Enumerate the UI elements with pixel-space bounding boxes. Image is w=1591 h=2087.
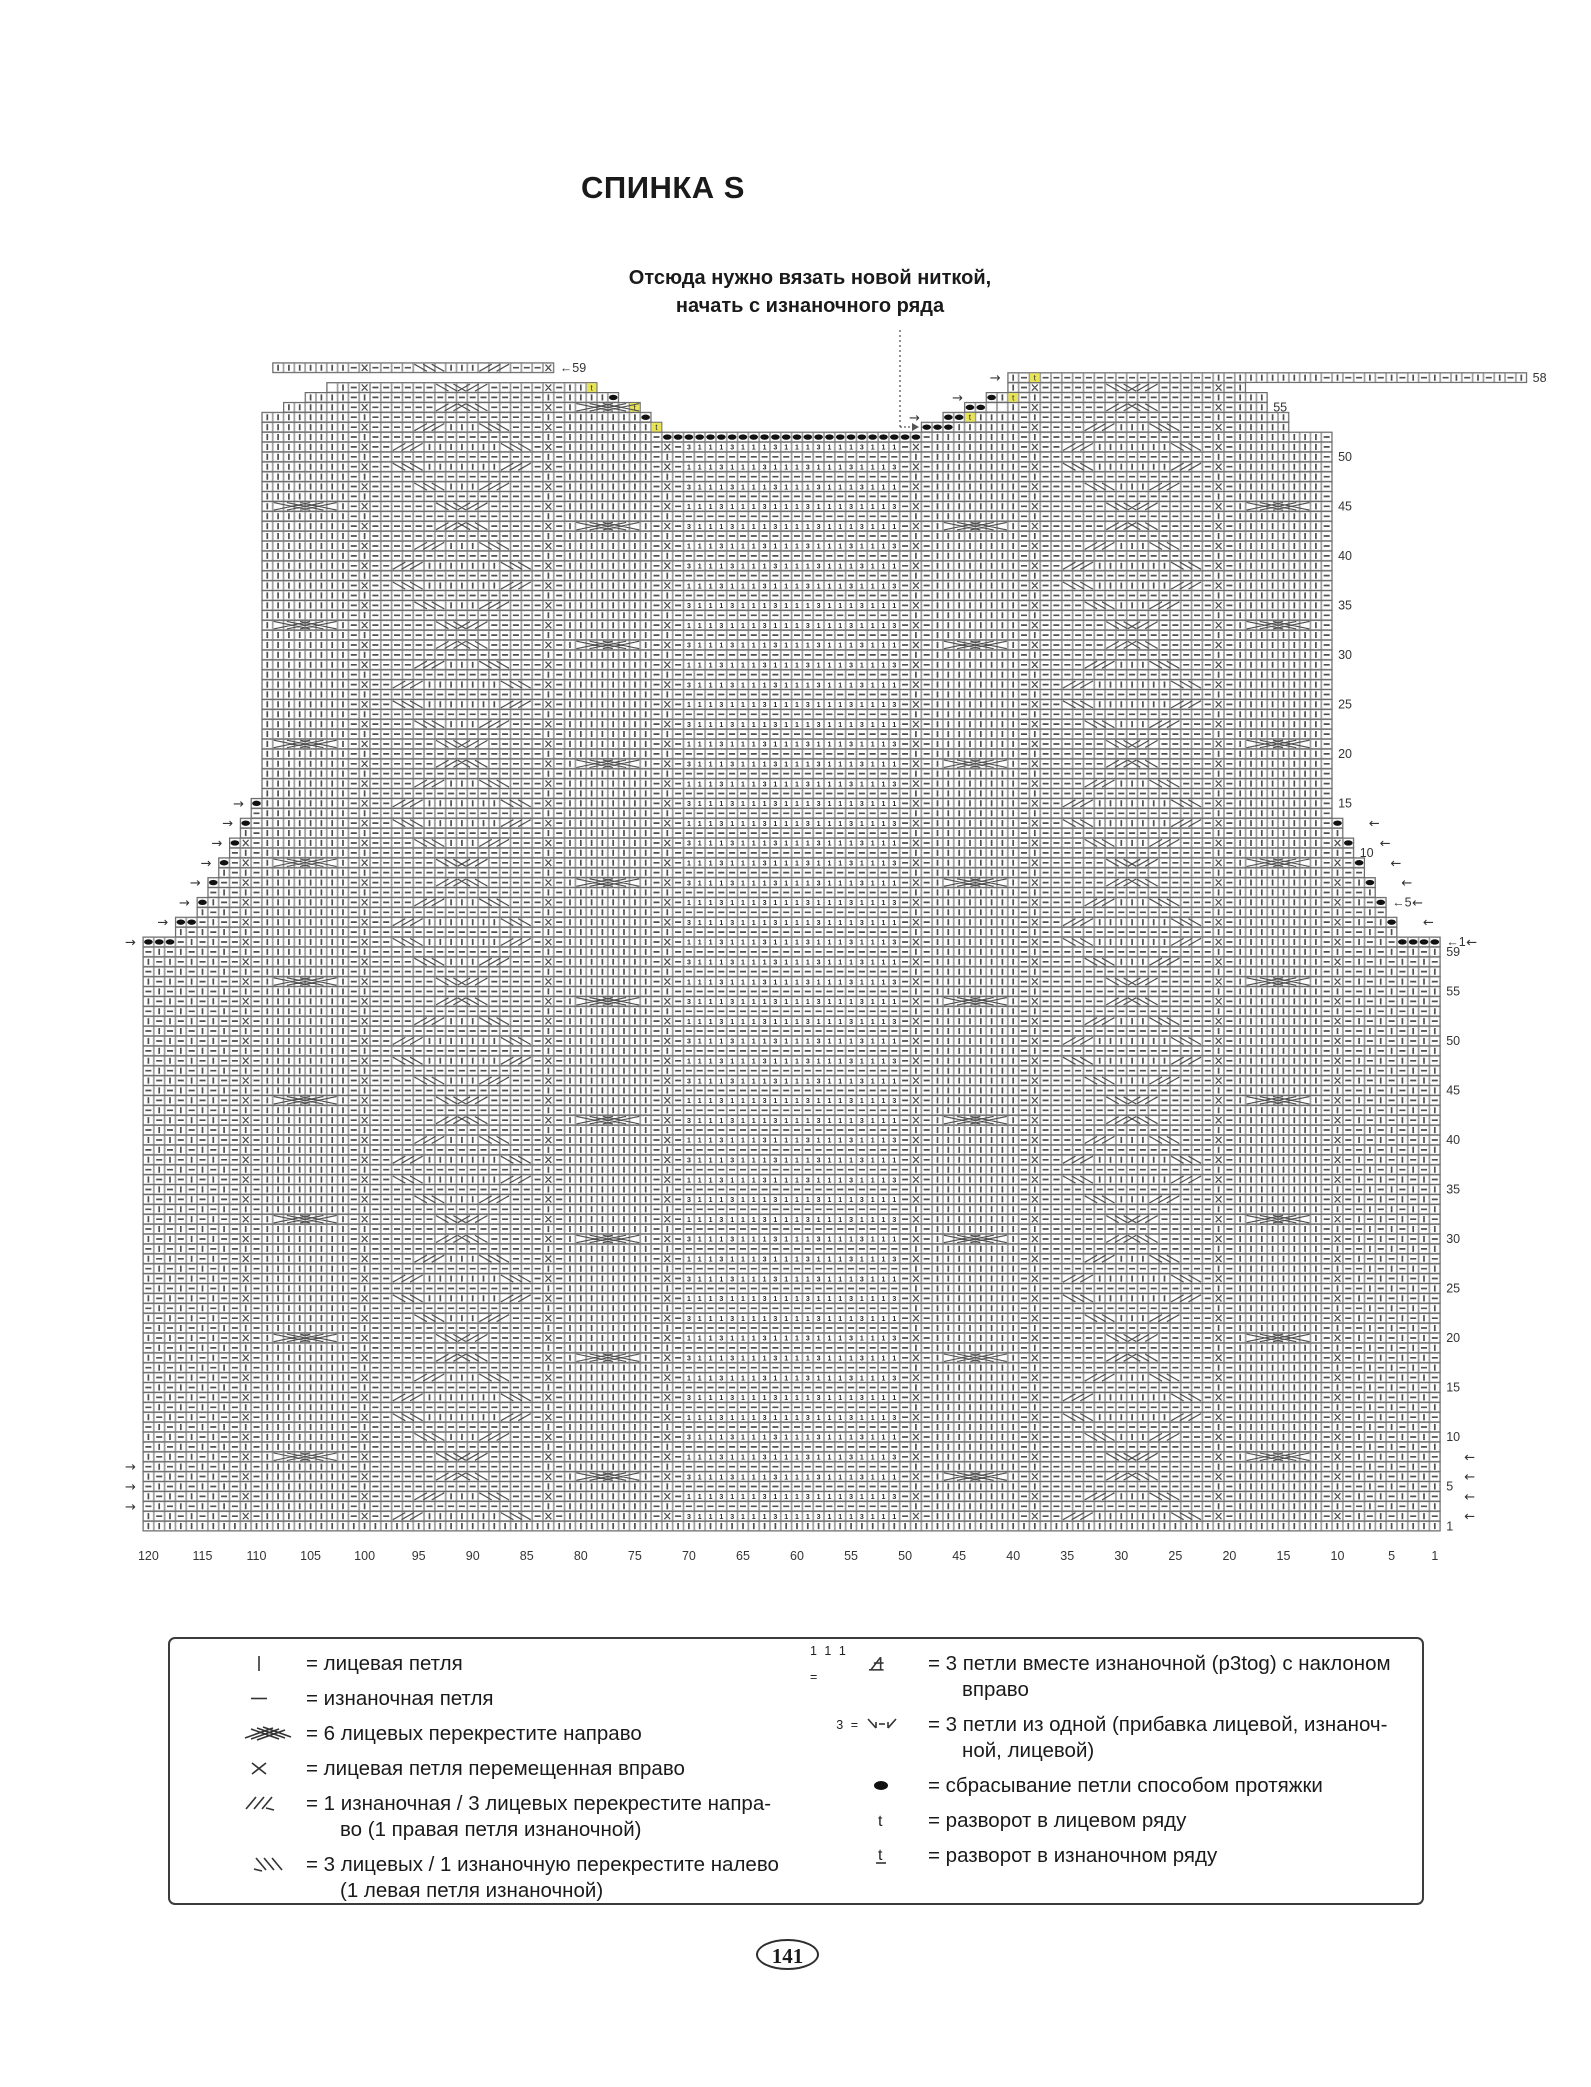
- svg-text:1: 1: [698, 722, 702, 729]
- svg-text:1: 1: [730, 465, 734, 472]
- svg-text:1: 1: [795, 742, 799, 749]
- svg-text:1: 1: [784, 1435, 788, 1442]
- svg-text:3: 3: [719, 702, 723, 709]
- svg-text:1: 1: [860, 979, 864, 986]
- svg-text:1: 1: [892, 1356, 896, 1363]
- svg-text:3: 3: [687, 880, 691, 887]
- svg-text:1: 1: [817, 979, 821, 986]
- svg-text:1: 1: [763, 1514, 767, 1521]
- svg-text:1: 1: [827, 1455, 831, 1462]
- svg-text:1: 1: [860, 1375, 864, 1382]
- svg-text:3: 3: [763, 1375, 767, 1382]
- svg-text:3: 3: [773, 1514, 777, 1521]
- svg-text:1: 1: [752, 1059, 756, 1066]
- svg-text:1: 1: [741, 1158, 745, 1165]
- svg-text:3: 3: [773, 722, 777, 729]
- svg-text:3: 3: [817, 643, 821, 650]
- svg-text:1: 1: [687, 1138, 691, 1145]
- svg-text:1: 1: [784, 722, 788, 729]
- svg-text:1: 1: [817, 900, 821, 907]
- svg-text:1: 1: [849, 484, 853, 491]
- svg-text:1: 1: [709, 979, 713, 986]
- svg-text:1: 1: [882, 999, 886, 1006]
- legend-line: = 3 петли из одной (прибавка лицевой, из…: [928, 1712, 1410, 1738]
- svg-text:1: 1: [838, 821, 842, 828]
- svg-text:1: 1: [752, 1138, 756, 1145]
- legend-box: = лицевая петля= изнаночная петля= 6 лиц…: [168, 1637, 1424, 1905]
- svg-text:3: 3: [730, 1197, 734, 1204]
- svg-text:1: 1: [741, 465, 745, 472]
- svg-text:1: 1: [741, 663, 745, 670]
- svg-text:1: 1: [860, 781, 864, 788]
- svg-text:1: 1: [784, 742, 788, 749]
- svg-text:1: 1: [698, 663, 702, 670]
- svg-text:1: 1: [860, 940, 864, 947]
- svg-text:3: 3: [687, 1474, 691, 1481]
- svg-text:1: 1: [827, 1356, 831, 1363]
- stitch-number-label: 80: [574, 1549, 588, 1563]
- row-direction-arrow-right: →: [211, 836, 222, 851]
- svg-text:3: 3: [849, 663, 853, 670]
- svg-text:1: 1: [784, 1257, 788, 1264]
- svg-text:1: 1: [806, 1276, 810, 1283]
- row-number-label: ←1: [1446, 935, 1466, 949]
- svg-text:t: t: [878, 1847, 883, 1864]
- svg-text:1: 1: [849, 1276, 853, 1283]
- svg-text:1: 1: [709, 920, 713, 927]
- svg-text:1: 1: [784, 643, 788, 650]
- svg-text:1: 1: [838, 1395, 842, 1402]
- svg-text:1: 1: [698, 1118, 702, 1125]
- svg-text:1: 1: [763, 1474, 767, 1481]
- svg-text:1: 1: [882, 821, 886, 828]
- svg-text:3: 3: [817, 1435, 821, 1442]
- legend-line: = лицевая петля: [306, 1651, 778, 1677]
- svg-text:1: 1: [741, 682, 745, 689]
- svg-text:1: 1: [849, 880, 853, 887]
- svg-text:1: 1: [752, 880, 756, 887]
- svg-text:3: 3: [892, 1415, 896, 1422]
- svg-text:1: 1: [719, 603, 723, 610]
- svg-text:1: 1: [827, 861, 831, 868]
- svg-text:1: 1: [871, 861, 875, 868]
- svg-text:3: 3: [892, 979, 896, 986]
- svg-text:1: 1: [709, 1257, 713, 1264]
- svg-text:1: 1: [882, 564, 886, 571]
- svg-text:1: 1: [752, 524, 756, 531]
- svg-text:1: 1: [882, 1375, 886, 1382]
- legend-line: = сбрасывание петли способом протяжки: [928, 1773, 1410, 1799]
- svg-text:1: 1: [709, 663, 713, 670]
- svg-text:3: 3: [763, 465, 767, 472]
- svg-text:1: 1: [806, 1395, 810, 1402]
- svg-text:1: 1: [871, 1435, 875, 1442]
- svg-text:1: 1: [827, 1019, 831, 1026]
- svg-text:3: 3: [817, 841, 821, 848]
- svg-text:1: 1: [871, 583, 875, 590]
- svg-text:1: 1: [763, 1158, 767, 1165]
- svg-text:1: 1: [752, 1435, 756, 1442]
- svg-text:3: 3: [687, 1237, 691, 1244]
- svg-text:1: 1: [741, 1039, 745, 1046]
- svg-text:1: 1: [817, 781, 821, 788]
- svg-text:1: 1: [719, 1237, 723, 1244]
- svg-text:1: 1: [882, 880, 886, 887]
- svg-text:1: 1: [795, 643, 799, 650]
- svg-text:1: 1: [773, 1455, 777, 1462]
- svg-text:1: 1: [817, 940, 821, 947]
- svg-text:1: 1: [784, 702, 788, 709]
- svg-text:1: 1: [741, 1435, 745, 1442]
- svg-text:1: 1: [730, 1375, 734, 1382]
- svg-text:1: 1: [860, 465, 864, 472]
- svg-text:3: 3: [763, 861, 767, 868]
- svg-text:1: 1: [773, 1494, 777, 1501]
- row-number-label: 25: [1446, 1282, 1460, 1296]
- cross-3-1-left-icon: [188, 1852, 306, 1878]
- svg-text:3: 3: [849, 465, 853, 472]
- svg-text:3: 3: [817, 1514, 821, 1521]
- svg-text:1: 1: [709, 445, 713, 452]
- svg-text:3: 3: [773, 920, 777, 927]
- svg-text:1: 1: [871, 1316, 875, 1323]
- svg-text:1: 1: [741, 1296, 745, 1303]
- svg-text:1: 1: [719, 564, 723, 571]
- svg-text:1: 1: [698, 841, 702, 848]
- svg-text:1: 1: [773, 1336, 777, 1343]
- svg-text:1: 1: [763, 1276, 767, 1283]
- svg-text:3: 3: [817, 1356, 821, 1363]
- svg-text:3: 3: [806, 1257, 810, 1264]
- svg-text:3: 3: [860, 801, 864, 808]
- svg-text:1: 1: [709, 861, 713, 868]
- svg-text:1: 1: [806, 484, 810, 491]
- svg-text:3: 3: [687, 524, 691, 531]
- svg-text:1: 1: [838, 1296, 842, 1303]
- svg-text:1: 1: [817, 1138, 821, 1145]
- chart-grid: [143, 363, 1527, 1531]
- row-direction-arrow-right: →: [125, 1460, 136, 1475]
- legend-entry-text: = 1 изнаночная / 3 лицевых перекрестите …: [306, 1791, 778, 1843]
- svg-text:1: 1: [892, 603, 896, 610]
- svg-text:1: 1: [871, 1138, 875, 1145]
- svg-text:3: 3: [860, 880, 864, 887]
- svg-text:3: 3: [892, 1494, 896, 1501]
- svg-text:1: 1: [827, 1316, 831, 1323]
- svg-text:3: 3: [773, 1474, 777, 1481]
- svg-text:1: 1: [838, 623, 842, 630]
- svg-text:3: 3: [849, 544, 853, 551]
- svg-text:3: 3: [763, 821, 767, 828]
- stitch-number-label: 30: [1114, 1549, 1128, 1563]
- svg-text:1: 1: [882, 1138, 886, 1145]
- svg-text:3: 3: [719, 504, 723, 511]
- svg-text:1: 1: [709, 940, 713, 947]
- svg-text:1: 1: [882, 960, 886, 967]
- stitch-number-label: 95: [412, 1549, 426, 1563]
- svg-text:1: 1: [730, 544, 734, 551]
- svg-text:1: 1: [719, 999, 723, 1006]
- svg-text:1: 1: [795, 1019, 799, 1026]
- svg-text:1: 1: [827, 1336, 831, 1343]
- svg-text:1: 1: [784, 1078, 788, 1085]
- svg-text:3: 3: [730, 1316, 734, 1323]
- svg-text:3: 3: [817, 1474, 821, 1481]
- svg-text:1: 1: [806, 564, 810, 571]
- svg-text:3: 3: [806, 1138, 810, 1145]
- svg-text:3: 3: [817, 603, 821, 610]
- svg-text:1: 1: [752, 861, 756, 868]
- svg-text:3: 3: [860, 1039, 864, 1046]
- svg-text:1: 1: [784, 940, 788, 947]
- svg-text:1: 1: [871, 841, 875, 848]
- svg-text:3: 3: [719, 1336, 723, 1343]
- svg-text:3: 3: [687, 841, 691, 848]
- legend-entry: t= разворот в лицевом ряду: [810, 1808, 1410, 1834]
- svg-text:3: 3: [849, 504, 853, 511]
- svg-text:1: 1: [698, 564, 702, 571]
- svg-text:1: 1: [838, 1197, 842, 1204]
- knitting-chart: 3111311131113111311111131113111311131113…: [0, 0, 1591, 1620]
- svg-text:3: 3: [817, 1078, 821, 1085]
- row-direction-arrow-left: ←: [1401, 876, 1412, 891]
- svg-text:3: 3: [719, 1019, 723, 1026]
- page: СПИНКА S Отсюда нужно вязать новой нитко…: [0, 0, 1591, 2087]
- svg-text:1: 1: [741, 702, 745, 709]
- svg-text:3: 3: [719, 465, 723, 472]
- svg-text:1: 1: [892, 960, 896, 967]
- svg-text:1: 1: [730, 1098, 734, 1105]
- svg-text:3: 3: [860, 1514, 864, 1521]
- stitch-number-label: 75: [628, 1549, 642, 1563]
- svg-text:1: 1: [838, 781, 842, 788]
- svg-text:1: 1: [795, 484, 799, 491]
- svg-text:3: 3: [806, 504, 810, 511]
- svg-text:3: 3: [817, 722, 821, 729]
- svg-text:1: 1: [687, 1336, 691, 1343]
- svg-text:3: 3: [892, 504, 896, 511]
- svg-text:1: 1: [838, 1217, 842, 1224]
- svg-text:1: 1: [752, 583, 756, 590]
- svg-text:1: 1: [838, 722, 842, 729]
- row-number-label: 20: [1338, 747, 1352, 761]
- svg-text:3: 3: [817, 920, 821, 927]
- svg-text:3: 3: [730, 801, 734, 808]
- svg-text:1: 1: [871, 702, 875, 709]
- svg-text:1: 1: [892, 564, 896, 571]
- legend-line: = 3 петли вместе изнаночной (p3tog) с на…: [928, 1651, 1410, 1677]
- svg-text:1: 1: [860, 742, 864, 749]
- svg-text:1: 1: [892, 524, 896, 531]
- svg-text:1: 1: [687, 544, 691, 551]
- svg-text:1: 1: [882, 484, 886, 491]
- svg-text:1: 1: [806, 1514, 810, 1521]
- svg-text:1: 1: [784, 801, 788, 808]
- svg-text:1: 1: [838, 1118, 842, 1125]
- svg-text:1: 1: [752, 702, 756, 709]
- svg-text:1: 1: [698, 504, 702, 511]
- svg-text:1: 1: [687, 821, 691, 828]
- svg-text:1: 1: [806, 722, 810, 729]
- svg-text:1: 1: [709, 465, 713, 472]
- svg-text:1: 1: [784, 960, 788, 967]
- svg-text:1: 1: [882, 1177, 886, 1184]
- stitch-number-label: 70: [682, 1549, 696, 1563]
- svg-text:1: 1: [763, 1237, 767, 1244]
- svg-text:1: 1: [882, 1494, 886, 1501]
- svg-text:1: 1: [882, 1217, 886, 1224]
- svg-text:1: 1: [730, 781, 734, 788]
- purl-stitch-icon: [188, 1686, 306, 1712]
- svg-text:1: 1: [741, 979, 745, 986]
- svg-text:1: 1: [698, 880, 702, 887]
- svg-text:1: 1: [698, 603, 702, 610]
- legend-entry: 1 1 1 == 3 петли вместе изнаночной (p3to…: [810, 1651, 1410, 1703]
- svg-text:1: 1: [752, 1237, 756, 1244]
- svg-text:3: 3: [773, 1356, 777, 1363]
- legend-entry: = изнаночная петля: [188, 1686, 778, 1712]
- svg-text:3: 3: [730, 1039, 734, 1046]
- svg-text:3: 3: [849, 1375, 853, 1382]
- svg-text:1: 1: [784, 1039, 788, 1046]
- svg-text:1: 1: [698, 1197, 702, 1204]
- svg-text:1: 1: [882, 781, 886, 788]
- svg-text:1: 1: [784, 484, 788, 491]
- svg-text:1: 1: [795, 544, 799, 551]
- legend-entry-text: = 3 петли вместе изнаночной (p3tog) с на…: [928, 1651, 1410, 1703]
- svg-text:1: 1: [698, 920, 702, 927]
- svg-text:1: 1: [882, 663, 886, 670]
- svg-text:1: 1: [763, 1316, 767, 1323]
- svg-text:3: 3: [849, 861, 853, 868]
- svg-text:1: 1: [860, 623, 864, 630]
- svg-text:1: 1: [806, 1435, 810, 1442]
- svg-text:3: 3: [806, 742, 810, 749]
- svg-text:3: 3: [817, 960, 821, 967]
- legend-entry: = 3 лицевых / 1 изнаночную перекрестите …: [188, 1852, 778, 1904]
- svg-text:1: 1: [752, 1257, 756, 1264]
- svg-text:1: 1: [849, 762, 853, 769]
- svg-text:1: 1: [698, 465, 702, 472]
- svg-text:1: 1: [698, 544, 702, 551]
- svg-text:3: 3: [763, 1019, 767, 1026]
- svg-text:1: 1: [752, 643, 756, 650]
- svg-text:1: 1: [741, 781, 745, 788]
- svg-text:1: 1: [882, 940, 886, 947]
- svg-text:1: 1: [827, 841, 831, 848]
- stitch-number-label: 10: [1331, 1549, 1345, 1563]
- row-direction-arrow-left: ←: [1380, 836, 1391, 851]
- svg-text:1: 1: [698, 1237, 702, 1244]
- svg-text:1: 1: [698, 1276, 702, 1283]
- svg-text:1: 1: [892, 1078, 896, 1085]
- svg-text:3: 3: [730, 1474, 734, 1481]
- svg-text:1: 1: [784, 1158, 788, 1165]
- legend-line: ной, лицевой): [928, 1738, 1410, 1764]
- svg-text:1: 1: [838, 1098, 842, 1105]
- svg-text:1: 1: [730, 742, 734, 749]
- legend-line: = лицевая петля перемещенная вправо: [306, 1756, 778, 1782]
- svg-text:1: 1: [795, 1316, 799, 1323]
- svg-text:1: 1: [687, 583, 691, 590]
- svg-text:1: 1: [741, 821, 745, 828]
- svg-text:1: 1: [827, 999, 831, 1006]
- svg-text:1: 1: [741, 445, 745, 452]
- svg-text:3: 3: [730, 920, 734, 927]
- svg-text:1: 1: [741, 801, 745, 808]
- svg-text:1: 1: [709, 623, 713, 630]
- legend-entry-text: = разворот в лицевом ряду: [928, 1808, 1410, 1834]
- legend-entry: = лицевая петля перемещенная вправо: [188, 1756, 778, 1782]
- legend-entry: = сбрасывание петли способом протяжки: [810, 1773, 1410, 1799]
- svg-text:3: 3: [719, 940, 723, 947]
- p3tog-right-icon: 1 1 1 =: [810, 1651, 928, 1677]
- svg-text:1: 1: [752, 801, 756, 808]
- legend-entry-text: = лицевая петля: [306, 1651, 778, 1677]
- svg-text:1: 1: [838, 1138, 842, 1145]
- svg-text:1: 1: [795, 1217, 799, 1224]
- svg-text:1: 1: [849, 1395, 853, 1402]
- svg-text:3: 3: [849, 1336, 853, 1343]
- svg-text:1: 1: [752, 623, 756, 630]
- svg-text:3: 3: [892, 1019, 896, 1026]
- svg-text:3: 3: [730, 643, 734, 650]
- svg-text:1: 1: [882, 504, 886, 511]
- svg-text:3: 3: [687, 564, 691, 571]
- svg-text:1: 1: [698, 1257, 702, 1264]
- svg-text:1: 1: [806, 682, 810, 689]
- svg-text:1: 1: [698, 979, 702, 986]
- svg-text:1: 1: [719, 445, 723, 452]
- stitch-number-label: 110: [247, 1549, 267, 1563]
- svg-text:1: 1: [784, 1237, 788, 1244]
- svg-text:1: 1: [882, 465, 886, 472]
- svg-text:3: 3: [892, 1138, 896, 1145]
- svg-text:1: 1: [730, 979, 734, 986]
- svg-text:1: 1: [871, 603, 875, 610]
- svg-text:1: 1: [709, 1474, 713, 1481]
- svg-text:1: 1: [784, 841, 788, 848]
- svg-text:1: 1: [763, 564, 767, 571]
- svg-text:1: 1: [773, 1415, 777, 1422]
- stitch-number-label: 60: [790, 1549, 804, 1563]
- legend-line: (1 левая петля изнаночной): [306, 1878, 779, 1904]
- svg-text:1: 1: [698, 1078, 702, 1085]
- svg-text:1: 1: [871, 821, 875, 828]
- svg-text:1: 1: [752, 1375, 756, 1382]
- svg-text:3: 3: [687, 445, 691, 452]
- svg-text:1: 1: [709, 1395, 713, 1402]
- svg-text:3: 3: [817, 445, 821, 452]
- svg-text:3: 3: [687, 1276, 691, 1283]
- svg-text:1: 1: [817, 623, 821, 630]
- svg-text:3: 3: [860, 1078, 864, 1085]
- svg-text:1: 1: [741, 1237, 745, 1244]
- svg-text:1: 1: [871, 762, 875, 769]
- svg-text:1: 1: [882, 1237, 886, 1244]
- svg-text:1: 1: [730, 623, 734, 630]
- svg-text:1: 1: [838, 465, 842, 472]
- svg-text:3: 3: [687, 643, 691, 650]
- svg-text:1: 1: [719, 1514, 723, 1521]
- svg-text:3: 3: [730, 960, 734, 967]
- svg-text:3: 3: [773, 564, 777, 571]
- svg-text:1: 1: [741, 603, 745, 610]
- stitch-number-label: 5: [1388, 1549, 1395, 1563]
- svg-text:1: 1: [730, 1138, 734, 1145]
- legend-entry-text: = 3 лицевых / 1 изнаночную перекрестите …: [306, 1852, 779, 1904]
- svg-text:1: 1: [827, 920, 831, 927]
